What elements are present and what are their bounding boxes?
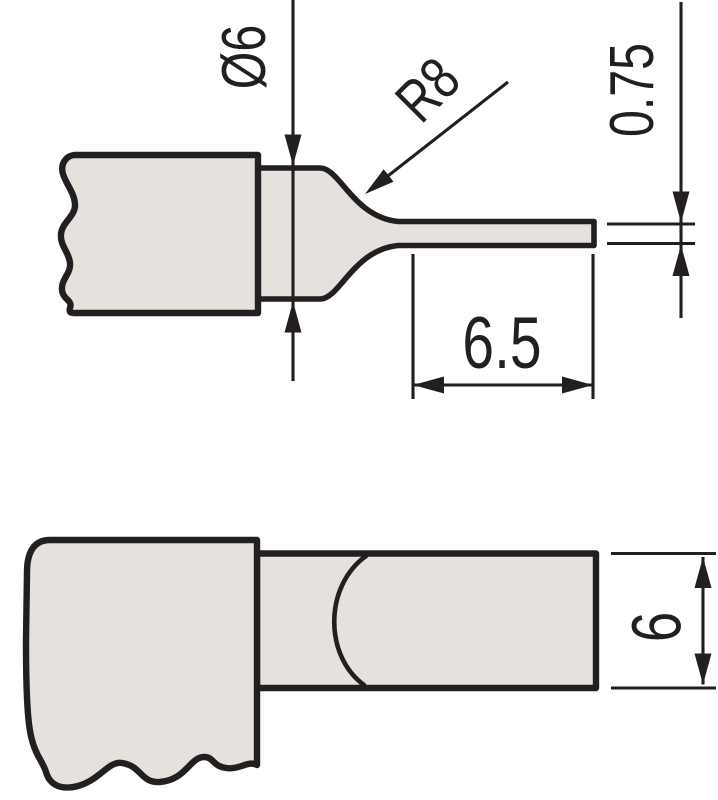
dimension-blade-thickness: 0.75 (597, 2, 695, 318)
top-view-blade-profile (258, 168, 594, 299)
length-label: 6.5 (462, 302, 541, 383)
drawing-canvas: Ø6 R8 0.75 6.5 (0, 0, 718, 800)
top-view-shaft-body (61, 155, 258, 313)
dimension-blade-width: 6 (611, 554, 716, 689)
length-arrowhead-right-icon (562, 377, 593, 394)
thickness-arrowhead-down-icon (673, 192, 690, 223)
thickness-label: 0.75 (597, 43, 666, 137)
side-view-shaft-body (26, 540, 257, 787)
side-view: 6 (26, 540, 716, 787)
width-label: 6 (618, 612, 696, 642)
dimension-blade-length: 6.5 (413, 254, 593, 399)
width-arrowhead-up-icon (695, 557, 712, 588)
diameter-arrowhead-up-icon (285, 302, 302, 333)
blade-tip-dimension-drawing: Ø6 R8 0.75 6.5 (0, 0, 718, 800)
thickness-arrowhead-up-icon (673, 245, 690, 276)
leader-tip-radius: R8 (365, 45, 508, 194)
diameter-arrowhead-down-icon (285, 135, 302, 166)
radius-leader-arrowhead-icon (365, 169, 394, 194)
side-view-blade (257, 554, 596, 689)
width-arrowhead-down-icon (695, 654, 712, 685)
top-view: Ø6 R8 0.75 6.5 (61, 0, 695, 399)
length-arrowhead-left-icon (413, 377, 444, 394)
diameter-label: Ø6 (209, 25, 278, 89)
